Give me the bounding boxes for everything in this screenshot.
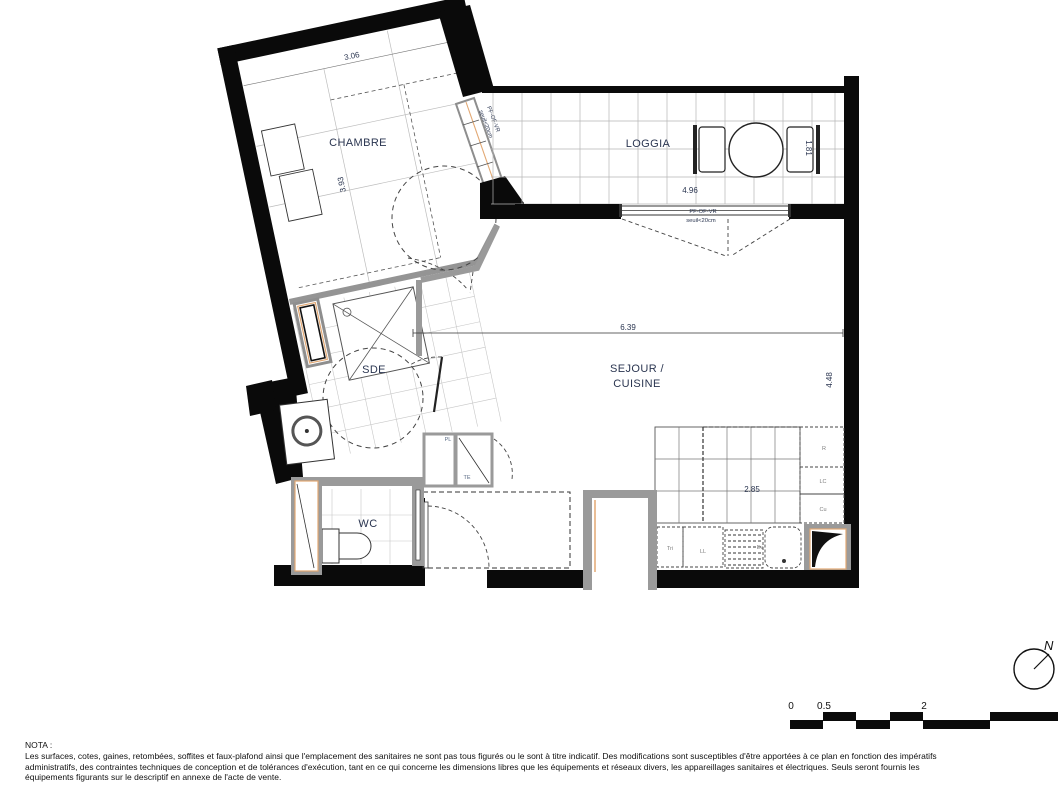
loggia-table-set bbox=[693, 123, 820, 177]
loggia-top-wall bbox=[482, 86, 858, 93]
sink-faucet-icon bbox=[782, 559, 786, 563]
window-seuil-label: seuil<20cm bbox=[686, 218, 716, 224]
toilet bbox=[322, 529, 371, 563]
chambre-width-dim: 3.06 bbox=[343, 50, 361, 62]
kitchen-counter bbox=[655, 427, 800, 523]
floor-plan-page: 3.06 3.93 bbox=[0, 0, 1061, 800]
nota-line: équipements figurants sur le descriptif … bbox=[25, 772, 1055, 783]
floor-plan-drawing: 3.06 3.93 bbox=[0, 0, 1061, 738]
corner-window bbox=[804, 524, 851, 572]
nota-block: NOTA : Les surfaces, cotes, gaines, reto… bbox=[25, 740, 1055, 783]
wc-door-leaf bbox=[416, 490, 420, 560]
round-table bbox=[729, 123, 783, 177]
chambre-door-leaf-dash bbox=[470, 272, 473, 293]
chambre-depth-dim: 3.93 bbox=[336, 175, 348, 193]
scale-tick-0: 0 bbox=[788, 701, 794, 712]
entry-clearance-zone bbox=[423, 492, 570, 568]
loggia-bottom-wall-right bbox=[789, 204, 845, 219]
sejour-label-line1: SEJOUR / bbox=[610, 363, 664, 375]
north-label: N bbox=[1044, 638, 1054, 653]
nota-line: Les surfaces, cotes, gaines, retombées, … bbox=[25, 751, 1055, 762]
loggia-bottom-wall-left bbox=[515, 204, 621, 219]
scale-bar: 0 0.5 2 bbox=[788, 701, 1058, 729]
closet-label: PL bbox=[445, 437, 452, 443]
sink-label: Ev bbox=[757, 545, 764, 551]
loggia-depth-dim: 1.81 bbox=[804, 140, 813, 156]
fridge-label: R bbox=[822, 446, 826, 452]
window-type-label: PF-OF-VR bbox=[689, 209, 716, 215]
scale-tick-05: 0.5 bbox=[817, 701, 831, 712]
entrance-door bbox=[423, 492, 570, 568]
bottom-wall-right bbox=[657, 570, 859, 588]
closet-door-swing bbox=[494, 439, 512, 479]
sejour-label-line2: CUISINE bbox=[613, 378, 660, 390]
hob-label: Cu bbox=[819, 507, 826, 513]
electrical-label: TE bbox=[463, 475, 470, 481]
entry-recess bbox=[583, 490, 657, 590]
loggia-width-dim: 4.96 bbox=[682, 186, 698, 195]
washer-label: LL bbox=[700, 549, 706, 555]
chair bbox=[699, 127, 725, 172]
nota-line: administratifs, des contraintes techniqu… bbox=[25, 762, 1055, 773]
left-wall-pier bbox=[246, 380, 276, 416]
scale-tick-2: 2 bbox=[921, 701, 927, 712]
chambre-top-wall bbox=[217, 0, 467, 65]
sejour-depth-dim: 4.48 bbox=[825, 372, 834, 388]
sejour-width-dim: 6.39 bbox=[620, 323, 636, 332]
kitchen-width-dim: 2.85 bbox=[744, 485, 760, 494]
nota-title: NOTA : bbox=[25, 740, 1055, 751]
left-exterior-wall bbox=[217, 45, 308, 397]
chambre-label: CHAMBRE bbox=[329, 137, 387, 149]
wc-label: WC bbox=[358, 518, 377, 530]
north-arrow-icon: N bbox=[1014, 638, 1054, 689]
window-opening-swing bbox=[622, 219, 790, 256]
loggia-label: LOGGIA bbox=[626, 138, 671, 150]
sorting-label: Tri bbox=[667, 546, 673, 552]
laundry-column-label: LC bbox=[819, 479, 826, 485]
wall-chambre-loggia-top bbox=[438, 5, 494, 97]
chambre-furniture bbox=[261, 122, 322, 223]
sde-label: SDE bbox=[362, 364, 386, 376]
bottom-wall-center bbox=[487, 570, 583, 588]
wc-window bbox=[291, 477, 322, 575]
right-exterior-wall bbox=[844, 76, 859, 588]
washbasin bbox=[280, 399, 335, 464]
